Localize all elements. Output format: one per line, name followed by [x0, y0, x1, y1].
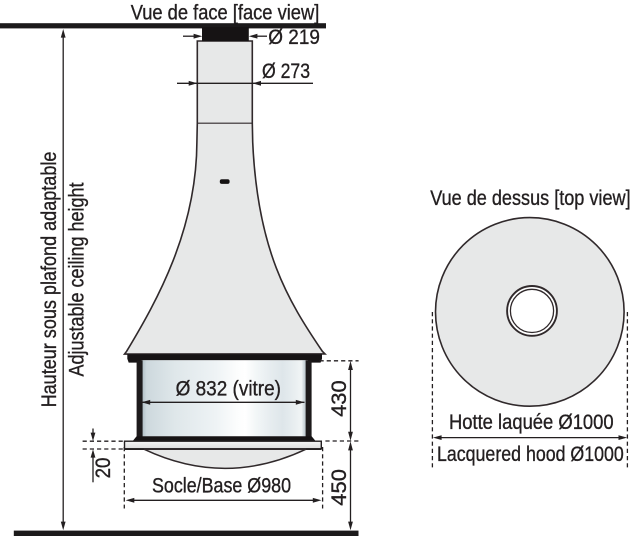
svg-text:Hauteur sous plafond adaptable: Hauteur sous plafond adaptable — [38, 152, 61, 408]
svg-text:Ø 273: Ø 273 — [262, 60, 310, 83]
svg-text:Adjustable ceiling height: Adjustable ceiling height — [66, 182, 89, 376]
svg-text:Vue de dessus [top view]: Vue de dessus [top view] — [430, 186, 630, 210]
svg-text:Vue de face [face view]: Vue de face [face view] — [131, 0, 320, 24]
svg-text:20: 20 — [92, 458, 115, 479]
svg-text:Socle/Base Ø980: Socle/Base Ø980 — [152, 474, 291, 497]
svg-text:Hotte laquée Ø1000: Hotte laquée Ø1000 — [449, 411, 614, 434]
svg-text:430: 430 — [328, 380, 351, 417]
svg-text:Ø 832 (vitre): Ø 832 (vitre) — [176, 378, 281, 401]
svg-text:450: 450 — [328, 469, 351, 506]
svg-text:Ø 219: Ø 219 — [268, 26, 320, 49]
svg-text:Lacquered hood Ø1000: Lacquered hood Ø1000 — [437, 443, 624, 466]
